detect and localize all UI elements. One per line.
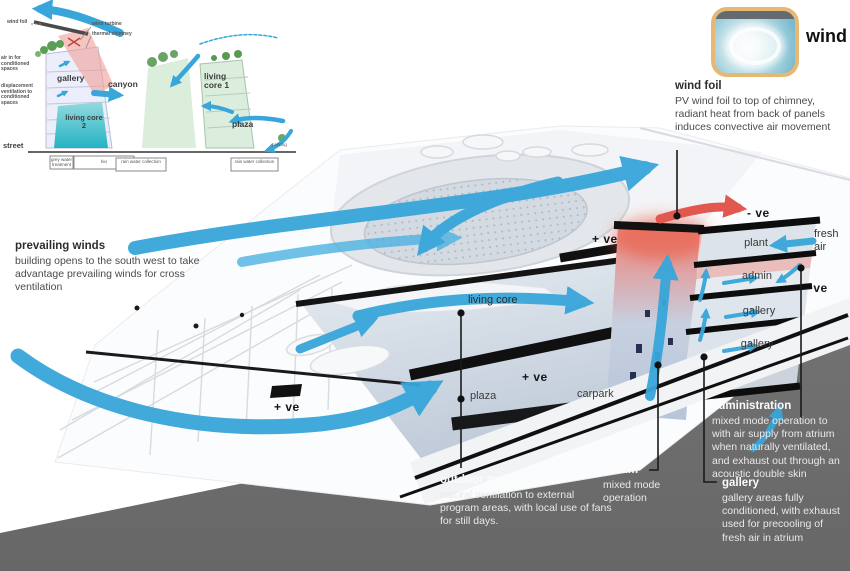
- ventilation-diagram: wind foil wind turbine thermal chimney a…: [0, 0, 850, 571]
- inset-label-rain-water-1: rain water collection: [116, 160, 166, 165]
- hurricane-swirl-icon: [729, 27, 781, 65]
- marker-pos-ve-left: + ve: [274, 400, 300, 414]
- inset-label-living-core-2: living core 2: [64, 114, 104, 131]
- inset-label-gallery: gallery: [57, 74, 101, 83]
- callout-administration-body: mixed mode operation to with air supply …: [712, 415, 848, 482]
- callout-atrium-body: mixed mode operation: [603, 479, 683, 506]
- inset-wind-foil-blade: [34, 22, 88, 34]
- callout-atrium-title: atrium: [603, 464, 683, 478]
- inset-label-wind-foil: wind foil: [7, 20, 33, 26]
- inset-label-wind-turbine: wind turbine: [92, 22, 136, 28]
- callout-outdoor-program-body: natural ventilation to external program …: [440, 489, 612, 529]
- callout-wind-foil-body: PV wind foil to top of chimney, radiant …: [675, 95, 843, 135]
- marker-pos-ve-center: + ve: [592, 232, 618, 246]
- callout-prevailing-winds-body: building opens to the south west to take…: [15, 255, 205, 295]
- wind-arrow-fresh-air: [776, 241, 813, 245]
- label-carpark: carpark: [577, 388, 614, 400]
- callout-wind-foil: wind foil PV wind foil to top of chimney…: [675, 80, 843, 135]
- inset-label-street: street: [3, 142, 35, 150]
- marker-neg-ve-top: - ve: [747, 206, 770, 220]
- floor-label-gallery-2: gallery: [731, 338, 783, 350]
- photo-top-strip: [715, 11, 795, 19]
- inset-label-parking: parking: [272, 143, 298, 148]
- callout-prevailing-winds: prevailing winds building opens to the s…: [15, 240, 205, 295]
- floor-label-gallery-1: gallery: [733, 305, 785, 317]
- floor-label-plant: plant: [733, 237, 779, 249]
- callout-wind-foil-title: wind foil: [675, 80, 843, 94]
- callout-gallery-title: gallery: [722, 477, 848, 491]
- callout-gallery-body: gallery areas fully conditioned, with ex…: [722, 492, 848, 545]
- inset-label-displacement: displacement ventilation to conditioned …: [1, 84, 37, 106]
- label-living-core: living core: [468, 294, 518, 306]
- inset-label-plaza: plaza: [232, 120, 272, 129]
- callout-administration: administration mixed mode operation to w…: [712, 400, 848, 481]
- inset-label-living-core-1: living core 1: [204, 72, 240, 91]
- wind-photo-thumbnail: [711, 7, 799, 77]
- inset-label-canyon: canyon: [108, 80, 154, 89]
- inset-label-rain-water-2: rain water collection: [231, 160, 278, 165]
- label-plaza: plaza: [470, 390, 496, 402]
- section-sketch-inset: wind foil wind turbine thermal chimney a…: [0, 0, 302, 192]
- inset-label-thermal-chimney: thermal chimney: [92, 32, 140, 38]
- marker-pos-ve-mid: + ve: [522, 370, 548, 384]
- callout-gallery: gallery gallery areas fully conditioned,…: [722, 477, 848, 545]
- callout-outdoor-program: outdoor program natural ventilation to e…: [440, 474, 612, 529]
- label-fresh-air: fresh air: [814, 228, 848, 253]
- inset-label-grey-water: grey water treatment: [50, 158, 73, 167]
- wind-section-title: wind: [806, 26, 847, 47]
- callout-outdoor-program-title: outdoor program: [440, 474, 612, 488]
- callout-atrium: atrium mixed mode operation: [603, 464, 683, 505]
- inset-label-air-in: air in for conditioned spaces: [1, 56, 33, 73]
- marker-neg-ve-right: - ve: [805, 281, 828, 295]
- callout-administration-title: administration: [712, 400, 848, 414]
- callout-prevailing-winds-title: prevailing winds: [15, 240, 205, 254]
- floor-label-admin: admin: [733, 270, 781, 282]
